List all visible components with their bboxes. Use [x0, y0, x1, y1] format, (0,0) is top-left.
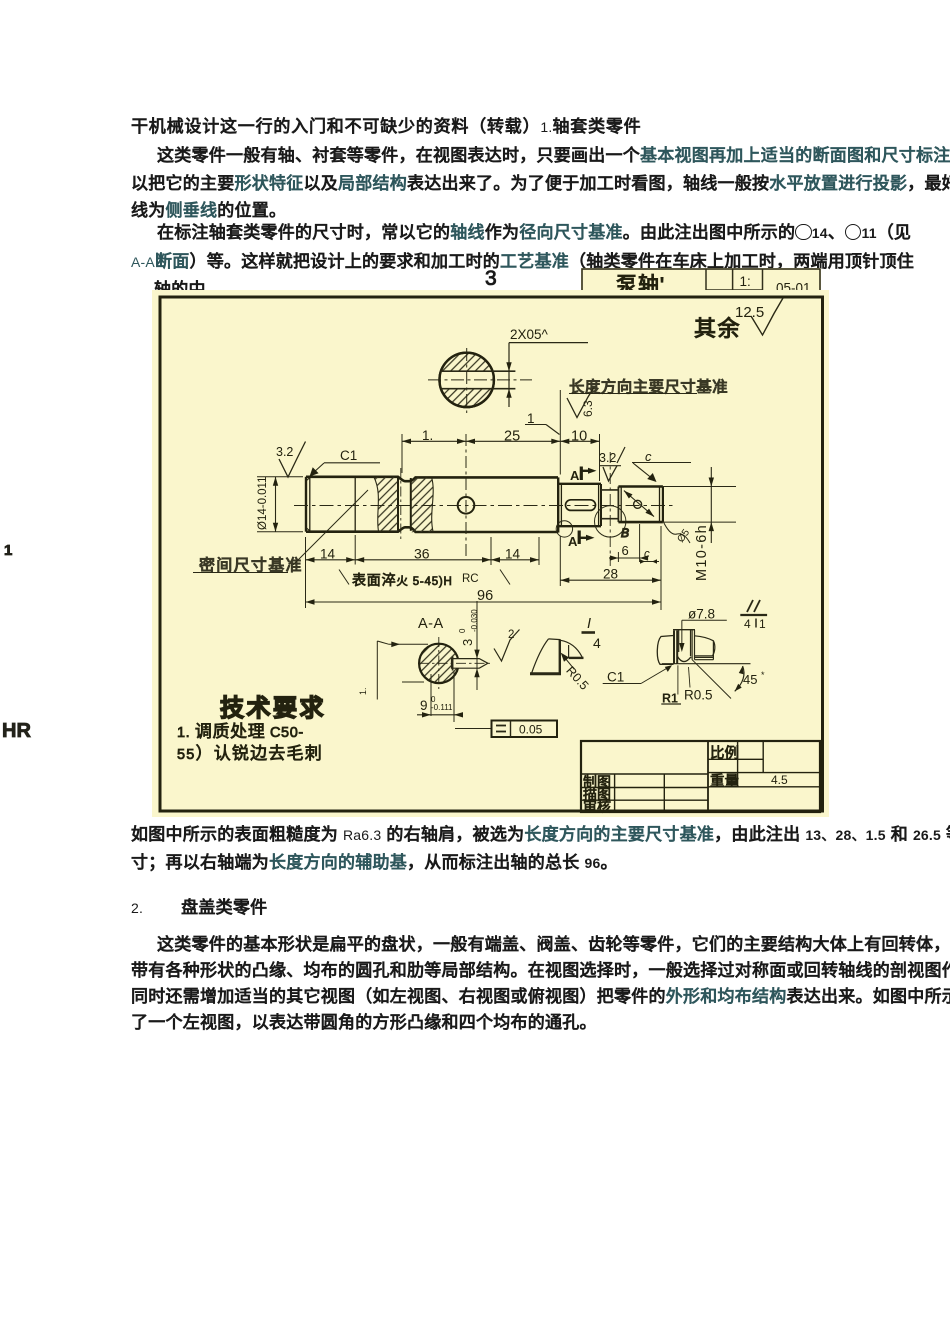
svg-text:重量: 重量: [710, 773, 739, 790]
svg-text:A-A: A-A: [418, 616, 444, 632]
svg-text:4: 4: [593, 635, 601, 651]
svg-text:比例: 比例: [710, 745, 739, 762]
svg-text:0.05: 0.05: [519, 723, 543, 737]
svg-text:I: I: [587, 616, 591, 632]
svg-text:3.2: 3.2: [276, 445, 293, 459]
svg-text:ø7.8: ø7.8: [688, 607, 715, 622]
svg-text:14: 14: [505, 547, 521, 562]
svg-text:M10-6h: M10-6h: [694, 524, 710, 581]
svg-text:36: 36: [414, 546, 430, 562]
svg-text:R0.5: R0.5: [684, 688, 713, 703]
svg-text:1: 1: [527, 411, 535, 426]
svg-text:c: c: [644, 549, 650, 561]
svg-text:C1: C1: [340, 448, 357, 463]
svg-text:10: 10: [571, 429, 587, 445]
svg-text:c: c: [645, 449, 652, 464]
svg-text:2: 2: [508, 629, 514, 641]
svg-text:6: 6: [622, 543, 629, 558]
svg-text:审核: 审核: [583, 799, 611, 815]
svg-text:6.3: 6.3: [581, 400, 595, 417]
svg-text:55）认锐边去毛刺: 55）认锐边去毛刺: [177, 744, 323, 763]
svg-text:其余: 其余: [694, 316, 741, 341]
svg-text:4: 4: [744, 617, 751, 631]
svg-text:3: 3: [460, 639, 475, 646]
svg-text:C1: C1: [607, 670, 624, 685]
svg-text:1: 1: [759, 617, 766, 631]
svg-text:1.: 1.: [422, 428, 433, 443]
svg-text:RC: RC: [462, 573, 479, 585]
svg-text:3.2: 3.2: [599, 451, 616, 465]
svg-text:Ø14-0.011: Ø14-0.011: [257, 477, 269, 531]
svg-text:A: A: [568, 534, 578, 549]
svg-text:45: 45: [743, 672, 757, 687]
svg-text:0: 0: [458, 628, 467, 633]
svg-text:1.: 1.: [358, 687, 368, 695]
svg-text:28: 28: [603, 567, 618, 582]
svg-text:12.5: 12.5: [735, 304, 764, 321]
svg-text:技术要求: 技术要求: [220, 695, 326, 722]
svg-text:96: 96: [477, 588, 493, 604]
svg-text:A: A: [570, 468, 580, 483]
svg-text:密间尺寸基准: 密间尺寸基准: [199, 557, 303, 575]
svg-text:1. 调质处理 C50-: 1. 调质处理 C50-: [177, 722, 304, 741]
svg-text:2X05^: 2X05^: [510, 327, 549, 342]
svg-text:9: 9: [420, 698, 428, 713]
svg-text:*: *: [761, 670, 765, 680]
svg-text:25: 25: [504, 429, 520, 445]
svg-text:14: 14: [320, 547, 336, 562]
svg-text:1:: 1:: [740, 274, 751, 289]
svg-text:4.5: 4.5: [771, 773, 788, 787]
svg-text:-0.111: -0.111: [431, 703, 453, 712]
svg-text:-0.030: -0.030: [470, 609, 479, 632]
svg-text:B: B: [621, 526, 629, 540]
